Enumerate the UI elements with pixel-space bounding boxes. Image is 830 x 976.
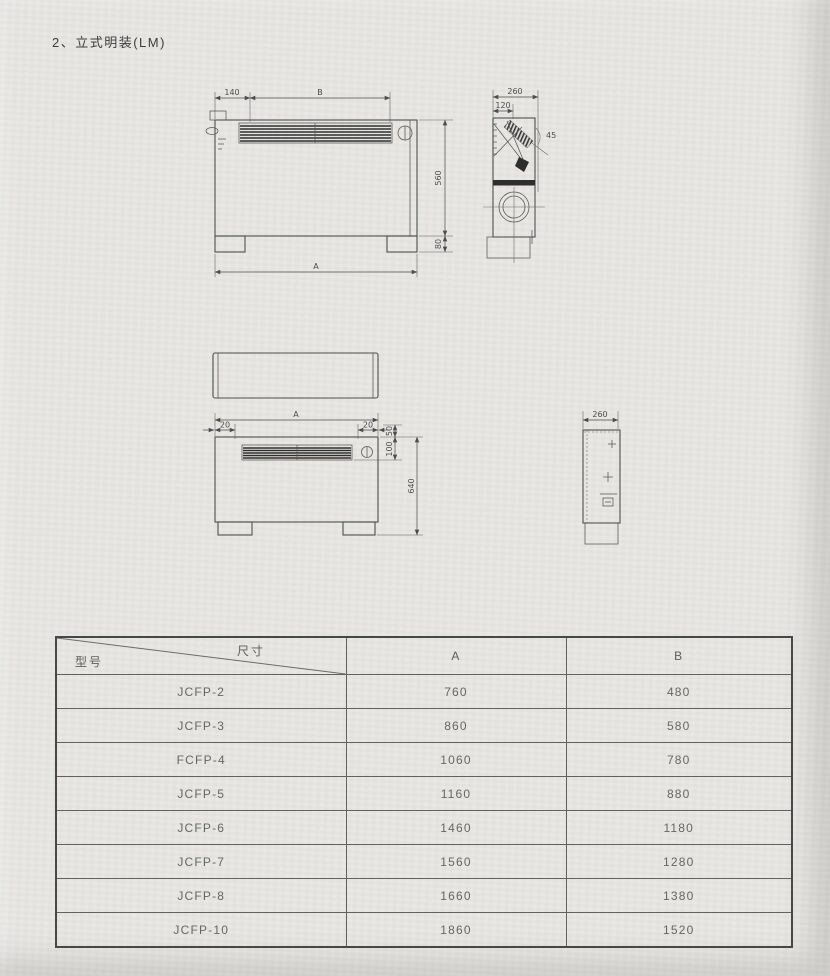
side-view-top-drawing: 260 120 45 xyxy=(480,80,625,265)
right-foot-2 xyxy=(343,522,375,535)
header-model-dim-cell: 型号 尺寸 xyxy=(56,637,346,675)
model-cell: JCFP-3 xyxy=(56,709,346,743)
model-cell: JCFP-8 xyxy=(56,879,346,913)
b-cell: 780 xyxy=(566,743,792,777)
dim-label-a: A xyxy=(313,262,319,271)
b-cell: 580 xyxy=(566,709,792,743)
a-cell: 1660 xyxy=(346,879,566,913)
model-cell: JCFP-7 xyxy=(56,845,346,879)
header-model-label: 型号 xyxy=(75,653,103,670)
b-cell: 1180 xyxy=(566,811,792,845)
scanned-catalog-page: 2、立式明装(LM) 140 B 560 80 xyxy=(0,0,830,976)
a-cell: 1160 xyxy=(346,777,566,811)
wall-bracket xyxy=(210,111,226,120)
coil-block xyxy=(515,157,529,172)
side-view-bottom-drawing: 260 xyxy=(572,402,642,557)
dim-label-560: 560 xyxy=(434,170,443,185)
model-cell: FCFP-4 xyxy=(56,743,346,777)
a-cell: 1860 xyxy=(346,913,566,948)
dim-label-45: 45 xyxy=(546,131,556,140)
dim-label-20-right: 20 xyxy=(363,421,373,430)
table-header-row: 型号 尺寸 A B xyxy=(56,637,792,675)
a-cell: 1560 xyxy=(346,845,566,879)
b-cell: 480 xyxy=(566,675,792,709)
dim-label-260b: 260 xyxy=(592,410,607,419)
b-cell: 1280 xyxy=(566,845,792,879)
dim-label-640: 640 xyxy=(407,478,416,493)
table-row: JCFP-3 860 580 xyxy=(56,709,792,743)
header-col-b: B xyxy=(566,637,792,675)
switch-knob xyxy=(206,128,218,135)
left-foot xyxy=(215,236,245,252)
left-foot-2 xyxy=(218,522,252,535)
section-title: 2、立式明装(LM) xyxy=(52,32,166,51)
drain-pan xyxy=(493,180,535,186)
model-cell: JCFP-10 xyxy=(56,913,346,948)
b-cell: 880 xyxy=(566,777,792,811)
dim-label-100: 100 xyxy=(385,441,394,456)
model-cell: JCFP-5 xyxy=(56,777,346,811)
table-row: JCFP-6 1460 1180 xyxy=(56,811,792,845)
dim-label-b: B xyxy=(317,88,323,97)
dim-label-a2: A xyxy=(293,410,299,419)
dim-label-260: 260 xyxy=(507,87,522,96)
cabinet-top-outline xyxy=(213,353,378,398)
base-box xyxy=(487,237,530,258)
b-cell: 1380 xyxy=(566,879,792,913)
right-foot xyxy=(387,236,417,252)
top-view-drawing xyxy=(205,345,390,405)
table-row: JCFP-10 1860 1520 xyxy=(56,913,792,948)
dim-label-20-left: 20 xyxy=(220,421,230,430)
dimension-table: 型号 尺寸 A B JCFP-2 760 480 JCFP-3 860 580 … xyxy=(55,636,793,948)
dim-label-120: 120 xyxy=(495,101,510,110)
front-view-bottom-drawing: A 20 20 50 100 640 xyxy=(190,403,430,573)
a-cell: 860 xyxy=(346,709,566,743)
model-cell: JCFP-2 xyxy=(56,675,346,709)
a-cell: 760 xyxy=(346,675,566,709)
dim-label-50: 50 xyxy=(385,426,394,436)
dim-label-80: 80 xyxy=(434,239,443,249)
base-box-2 xyxy=(585,523,618,544)
b-cell: 1520 xyxy=(566,913,792,948)
model-cell: JCFP-6 xyxy=(56,811,346,845)
header-col-a: A xyxy=(346,637,566,675)
table-row: JCFP-7 1560 1280 xyxy=(56,845,792,879)
header-dim-label: 尺寸 xyxy=(237,642,265,659)
a-cell: 1060 xyxy=(346,743,566,777)
table-row: JCFP-8 1660 1380 xyxy=(56,879,792,913)
dim-label-140: 140 xyxy=(224,88,239,97)
table-row: JCFP-5 1160 880 xyxy=(56,777,792,811)
table-row: FCFP-4 1060 780 xyxy=(56,743,792,777)
a-cell: 1460 xyxy=(346,811,566,845)
table-row: JCFP-2 760 480 xyxy=(56,675,792,709)
front-view-top-drawing: 140 B 560 80 A xyxy=(195,85,480,285)
